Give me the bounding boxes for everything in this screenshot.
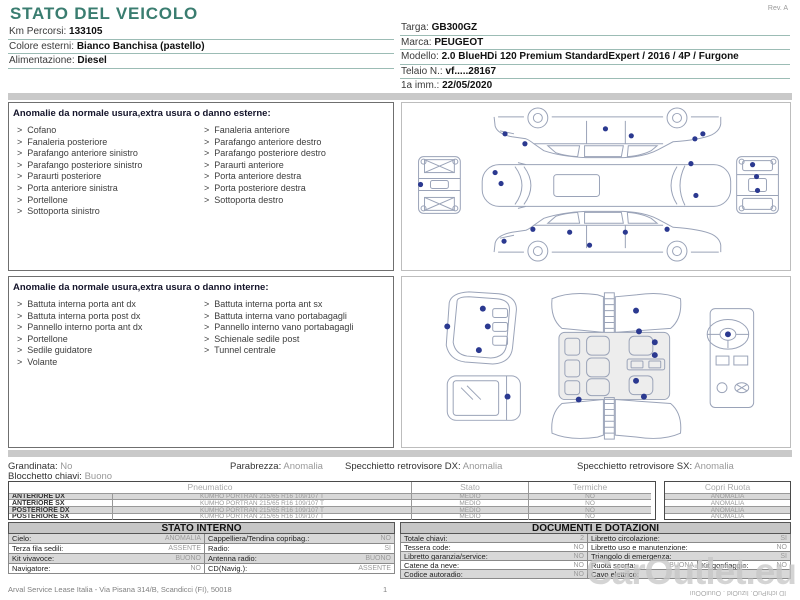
exterior-damage-diagram xyxy=(401,102,791,271)
field-label: Marca: xyxy=(401,37,432,48)
interior-anomalies-heading: Anomalie da normale usura,extra usura o … xyxy=(9,277,393,296)
anomaly-item: Sottoporta destro xyxy=(204,195,391,207)
interior-damage-diagram xyxy=(401,276,791,448)
field-label: 1a imm.: xyxy=(401,80,439,91)
tire-position: POSTERIORE SX xyxy=(9,513,113,520)
field-value: 22/05/2020 xyxy=(442,80,492,91)
field-value: 133105 xyxy=(69,26,102,37)
car-interior-diagram xyxy=(402,277,790,447)
wheel-cover-state: ANOMALIA xyxy=(665,513,790,520)
table-row: Kit vivavoce:BUONO Antenna radio:BUONO xyxy=(8,554,395,564)
header-fields-left: Km Percorsi: 133105 Colore esterni: Bian… xyxy=(8,25,394,69)
damage-dot xyxy=(754,174,759,179)
anomaly-item: Porta anteriore sinistra xyxy=(17,183,204,195)
tire-position: POSTERIORE DX xyxy=(9,506,113,513)
field-km: Km Percorsi: 133105 xyxy=(8,25,394,40)
table-title: STATO INTERNO xyxy=(8,522,395,534)
tire-winter: NO xyxy=(529,499,651,506)
tire-col-header: Copri Ruota xyxy=(665,482,790,493)
plan-view xyxy=(482,163,731,209)
damage-dot xyxy=(418,182,423,187)
field-value: Diesel xyxy=(77,55,106,66)
damage-dot xyxy=(725,331,731,337)
field-label: Km Percorsi: xyxy=(9,26,66,37)
anomaly-item: Fanaleria posteriore xyxy=(17,137,204,149)
anomaly-item: Sottoporta sinistro xyxy=(17,206,204,218)
page-number: 1 xyxy=(383,585,387,594)
tire-spec: KUMHO PORTRAN 215/65 R16 109/107 T xyxy=(113,506,412,513)
damage-dot xyxy=(688,161,693,166)
damage-dot xyxy=(641,394,647,400)
anomaly-item: Battuta interna porta ant sx xyxy=(204,299,391,311)
cabin-plan-view xyxy=(552,293,681,439)
anomaly-item: Parafango posteriore destro xyxy=(204,148,391,160)
damage-dot xyxy=(576,397,582,403)
damage-dot xyxy=(636,328,642,334)
field-modello: Modello: 2.0 BlueHDi 120 Premium Standar… xyxy=(400,50,790,65)
tire-winter: NO xyxy=(529,506,651,513)
vehicle-report-page: STATO DEL VEICOLO Rev. A Km Percorsi: 13… xyxy=(0,0,800,600)
condition-specchietto-sx: Specchietto retrovisore SX: Anomalia xyxy=(577,461,734,472)
interior-state-table: STATO INTERNO Cielo:ANOMALIA Cappelliera… xyxy=(8,522,395,574)
anomaly-item: Tunnel centrale xyxy=(204,345,391,357)
tire-condition: MEDIO xyxy=(412,513,529,520)
table-title: DOCUMENTI E DOTAZIONI xyxy=(400,522,791,534)
field-marca: Marca: PEUGEOT xyxy=(400,36,790,51)
field-prima-imm: 1a imm.: 22/05/2020 xyxy=(400,79,790,94)
field-label: Alimentazione: xyxy=(9,55,75,66)
tire-position: ANTERIORE DX xyxy=(9,493,113,500)
revision-label: Rev. A xyxy=(768,5,788,12)
tire-condition: MEDIO xyxy=(412,506,529,513)
anomaly-item: Porta posteriore destra xyxy=(204,183,391,195)
interior-anomalies-col2: Battuta interna porta ant sx Battuta int… xyxy=(204,299,391,369)
field-label: Colore esterni: xyxy=(9,41,74,52)
page-title: STATO DEL VEICOLO xyxy=(10,4,198,24)
damage-dot xyxy=(633,378,639,384)
tire-col-header: Stato xyxy=(412,482,529,493)
wheel-cover-state: ANOMALIA xyxy=(665,493,790,500)
anomaly-item: Portellone xyxy=(17,195,204,207)
exterior-anomalies-col2: Fanaleria anteriore Parafango anteriore … xyxy=(204,125,391,218)
anomaly-item: Portellone xyxy=(17,334,204,346)
anomaly-item: Parafango anteriore sinistro xyxy=(17,148,204,160)
field-colore: Colore esterni: Bianco Banchisa (pastell… xyxy=(8,40,394,55)
field-value: PEUGEOT xyxy=(434,37,483,48)
anomaly-item: Pannello interno porta ant dx xyxy=(17,322,204,334)
anomaly-item: Schienale sedile post xyxy=(204,334,391,346)
tire-col-header: Pneumatico xyxy=(9,482,412,493)
anomaly-item: Battuta interna porta ant dx xyxy=(17,299,204,311)
damage-dot xyxy=(444,323,450,329)
tire-winter: NO xyxy=(529,493,651,500)
tire-winter: NO xyxy=(529,513,651,520)
damage-dot xyxy=(567,230,572,235)
wheel-cover-state: ANOMALIA xyxy=(665,499,790,506)
damage-dot xyxy=(530,227,535,232)
side-view-bottom xyxy=(494,211,721,261)
damage-dot xyxy=(505,394,511,400)
field-label: Modello: xyxy=(401,51,439,62)
damage-dot xyxy=(501,239,506,244)
wheel-cover-table: Copri Ruota ANOMALIA ANOMALIA ANOMALIA A… xyxy=(664,481,791,520)
damage-dot xyxy=(652,339,658,345)
interior-anomalies-panel: Anomalie da normale usura,extra usura o … xyxy=(8,276,394,448)
damage-dot xyxy=(623,230,628,235)
interior-anomalies-col1: Battuta interna porta ant dx Battuta int… xyxy=(17,299,204,369)
anomaly-item: Paraurti anteriore xyxy=(204,160,391,172)
anomaly-item: Pannello interno vano portabagagli xyxy=(204,322,391,334)
damage-dot xyxy=(693,193,698,198)
wheel-cover-state: ANOMALIA xyxy=(665,506,790,513)
tire-spec: KUMHO PORTRAN 215/65 R16 109/107 T xyxy=(113,513,412,520)
damage-dot xyxy=(493,170,498,175)
section-divider xyxy=(8,93,792,100)
damage-dot xyxy=(664,227,669,232)
field-value: 2.0 BlueHDi 120 Premium StandardExpert /… xyxy=(442,51,739,62)
damage-dot xyxy=(476,347,482,353)
tire-position: ANTERIORE SX xyxy=(9,499,113,506)
tire-spec: KUMHO PORTRAN 215/65 R16 109/107 T xyxy=(113,499,412,506)
damage-dot xyxy=(692,136,697,141)
condition-specchietto-dx: Specchietto retrovisore DX: Anomalia xyxy=(345,461,502,472)
field-value: vf.....28167 xyxy=(445,66,496,77)
tire-condition: MEDIO xyxy=(412,499,529,506)
exterior-anomalies-heading: Anomalie da normale usura,extra usura o … xyxy=(9,103,393,122)
footer-address: Arval Service Lease Italia - Via Pisana … xyxy=(8,585,232,594)
mirrored-artifact-text: ID ichiPuO. IizuOid . OuuiOOui xyxy=(690,589,786,596)
field-label: Telaio N.: xyxy=(401,66,443,77)
damage-dot xyxy=(750,162,755,167)
car-exterior-diagram xyxy=(402,103,790,270)
section-divider xyxy=(8,450,792,457)
damage-dot xyxy=(480,306,486,312)
field-value: Bianco Banchisa (pastello) xyxy=(77,41,205,52)
dashboard-view xyxy=(707,309,753,408)
anomaly-item: Fanaleria anteriore xyxy=(204,125,391,137)
table-row: Totale chiavi:2 Libretto circolazione:SI xyxy=(400,534,791,543)
tire-table: Pneumatico Stato Termiche ANTERIORE DX K… xyxy=(8,481,656,520)
front-view xyxy=(419,157,461,214)
damage-dot xyxy=(587,243,592,248)
damage-dot xyxy=(603,126,608,131)
table-row: Terza fila sedili:ASSENTE Radio:SI xyxy=(8,544,395,554)
exterior-anomalies-col1: Cofano Fanaleria posteriore Parafango an… xyxy=(17,125,204,218)
trunk-view xyxy=(446,292,516,364)
caroutlet-watermark: CarOutlet.eu xyxy=(586,551,796,593)
field-label: Targa: xyxy=(401,22,429,33)
damage-dot xyxy=(502,131,507,136)
field-alimentazione: Alimentazione: Diesel xyxy=(8,54,394,69)
field-targa: Targa: GB300GZ xyxy=(400,21,790,36)
side-view-top-flipped xyxy=(494,108,721,158)
damage-dot xyxy=(485,323,491,329)
anomaly-item: Porta anteriore destra xyxy=(204,171,391,183)
damage-dot xyxy=(633,308,639,314)
anomaly-item: Cofano xyxy=(17,125,204,137)
anomaly-item: Volante xyxy=(17,357,204,369)
anomaly-item: Parafango posteriore sinistro xyxy=(17,160,204,172)
exterior-anomalies-panel: Anomalie da normale usura,extra usura o … xyxy=(8,102,394,271)
rear-view xyxy=(737,157,779,214)
field-telaio: Telaio N.: vf.....28167 xyxy=(400,65,790,80)
anomaly-item: Parafango anteriore destro xyxy=(204,137,391,149)
damage-dot xyxy=(755,188,760,193)
condition-parabrezza: Parabrezza: Anomalia xyxy=(230,461,323,472)
anomaly-item: Battuta interna vano portabagagli xyxy=(204,311,391,323)
table-row: Navigatore:NO CD(Navig.):ASSENTE xyxy=(8,564,395,574)
anomaly-item: Paraurti posteriore xyxy=(17,171,204,183)
field-value: GB300GZ xyxy=(432,22,478,33)
damage-dot xyxy=(522,141,527,146)
damage-dot xyxy=(498,181,503,186)
anomaly-item: Battuta interna porta post dx xyxy=(17,311,204,323)
header-fields-right: Targa: GB300GZ Marca: PEUGEOT Modello: 2… xyxy=(400,21,790,94)
table-row: Cielo:ANOMALIA Cappelliera/Tendina copri… xyxy=(8,534,395,544)
tire-col-header: Termiche xyxy=(529,482,651,493)
damage-dot xyxy=(700,131,705,136)
tire-spec: KUMHO PORTRAN 215/65 R16 109/107 T xyxy=(113,493,412,500)
damage-dot xyxy=(652,352,658,358)
tire-condition: MEDIO xyxy=(412,493,529,500)
damage-dot xyxy=(629,133,634,138)
anomaly-item: Sedile guidatore xyxy=(17,345,204,357)
